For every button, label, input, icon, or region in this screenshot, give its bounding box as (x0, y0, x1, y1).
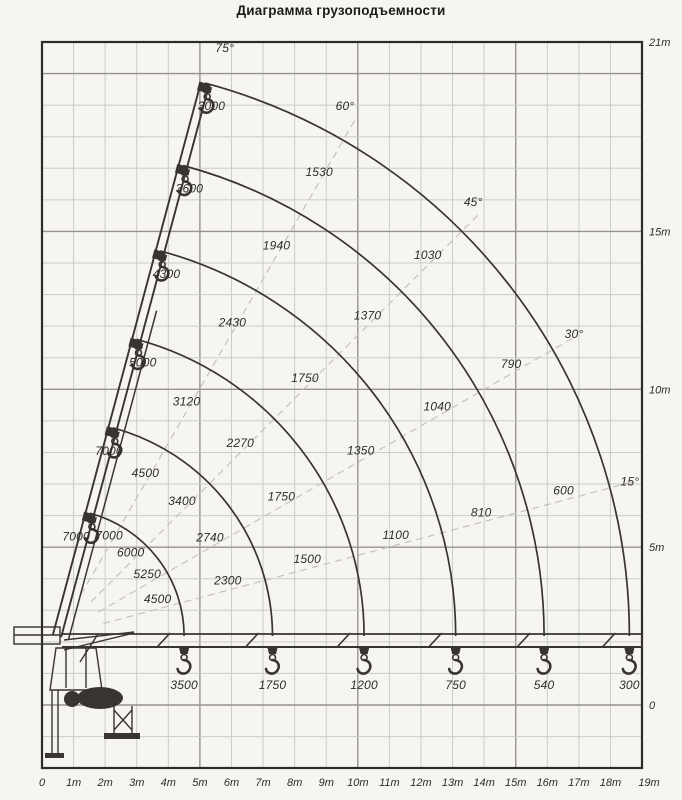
y-axis-tick-label: 15m (649, 226, 670, 238)
capacity-label-0: 750 (445, 678, 466, 692)
capacity-label-15: 1500 (294, 552, 322, 566)
hook-body (266, 660, 279, 674)
capacity-label-60: 1940 (263, 239, 291, 253)
x-axis-tick-label: 17m (568, 777, 589, 789)
hook-body (623, 660, 636, 674)
x-axis-tick-label: 12m (410, 777, 431, 789)
capacity-label-45: 3400 (168, 494, 196, 508)
capacity-label-30: 1750 (268, 489, 296, 503)
x-axis-tick-label: 6m (224, 777, 239, 789)
capacity-label-0: 540 (534, 678, 555, 692)
ground-hook-icon (266, 648, 279, 674)
hook-block (77, 687, 123, 709)
y-axis-tick-label: 5m (649, 542, 664, 554)
capacity-label-0: 3500 (170, 678, 198, 692)
capacity-label-0: 1750 (259, 678, 287, 692)
ground-hook-icon (449, 648, 462, 674)
hook-shackle (87, 517, 97, 523)
capacity-label-30: 1350 (347, 444, 375, 458)
hook-shackle (157, 255, 167, 261)
boom-stage-joint (602, 633, 615, 647)
capacity-label-0: 1200 (350, 678, 378, 692)
x-axis-tick-label: 15m (505, 777, 526, 789)
capacity-label-45: 1750 (291, 371, 319, 385)
hook-body (538, 660, 551, 674)
hook-shackle (133, 343, 143, 349)
angle-line-30 (99, 336, 577, 612)
hook-body (178, 660, 191, 674)
hook-body (449, 660, 462, 674)
outrigger-jack (114, 706, 132, 734)
angle-label-75: 75° (215, 41, 234, 55)
capacity-label-30: 790 (501, 357, 522, 371)
capacity-label-30: 1040 (424, 399, 452, 413)
angle-label-45: 45° (464, 195, 483, 209)
capacity-label-15: 600 (553, 483, 574, 497)
capacity-label-45: 2270 (225, 436, 254, 450)
crane-load-chart-canvas: 75°60°45°30°15°7000700060005250450035007… (0, 0, 682, 800)
outrigger-foot (104, 733, 140, 739)
capacity-label-30: 2740 (195, 531, 224, 545)
x-axis-tick-label: 8m (287, 777, 302, 789)
capacity-label-45: 1030 (414, 248, 442, 262)
boom-stage-joint (337, 633, 350, 647)
y-axis-tick-label: 21m (648, 37, 670, 49)
capacity-label-75: 3000 (198, 99, 226, 113)
capacity-label-75: 4300 (153, 267, 181, 281)
load-curve (205, 83, 629, 636)
capacity-label-0: 300 (619, 678, 640, 692)
y-axis-tick-label: 10m (649, 384, 670, 396)
capacity-label-15: 4500 (144, 592, 172, 606)
capacity-label-15: 810 (471, 505, 492, 519)
x-axis-tick-label: 9m (319, 777, 334, 789)
x-axis-tick-label: 10m (347, 777, 368, 789)
capacity-label-60: 1530 (305, 165, 333, 179)
angle-label-30: 30° (565, 327, 584, 341)
x-axis-tick-label: 13m (442, 777, 463, 789)
x-axis-tick-label: 4m (161, 777, 176, 789)
y-axis-tick-label: 0 (649, 700, 656, 712)
capacity-label-60: 4500 (132, 466, 160, 480)
hook-body (358, 660, 371, 674)
hook-shackle (624, 648, 634, 654)
boom-stage-joint (517, 633, 530, 647)
capacity-label-75: 7000 (95, 444, 123, 458)
capacity-label-75: 3600 (176, 182, 204, 196)
x-axis-tick-label: 11m (379, 777, 400, 789)
capacity-label-45: 1370 (354, 308, 382, 322)
x-axis-tick-label: 1m (66, 777, 81, 789)
front-jack-foot (45, 753, 64, 758)
hook-shackle (268, 648, 278, 654)
boom-stage-joint (246, 633, 259, 647)
angle-label-15: 15° (621, 474, 640, 488)
hook-shackle (539, 648, 549, 654)
crane-column (50, 648, 102, 690)
angle-label-60: 60° (336, 99, 355, 113)
x-axis-tick-label: 5m (192, 777, 207, 789)
x-axis-tick-label: 19m (638, 777, 659, 789)
hook-shackle (110, 432, 120, 438)
boom-stage-joint (429, 633, 442, 647)
hook-shackle (180, 169, 190, 175)
x-axis-tick-label: 7m (255, 777, 270, 789)
capacity-label-60: 3120 (173, 395, 201, 409)
x-axis-tick-label: 14m (473, 777, 494, 789)
angle-line-60 (81, 116, 357, 594)
capacity-label-60: 7000 (95, 529, 123, 543)
hook-block-sheave (64, 691, 80, 707)
x-axis-tick-label: 18m (600, 777, 621, 789)
capacity-label-15: 2300 (213, 573, 242, 587)
capacity-label-30: 5250 (134, 567, 162, 581)
load-curve (183, 166, 544, 637)
ground-hook-icon (623, 648, 636, 674)
hook-shackle (451, 648, 461, 654)
ground-hook-icon (178, 648, 191, 674)
x-axis-tick-label: 3m (129, 777, 144, 789)
hook-shackle (179, 648, 189, 654)
capacity-label-75: 7000 (62, 529, 90, 543)
front-jack (52, 690, 58, 754)
load-capacity-diagram: Диаграмма грузоподъемности 75°60°45°30°1… (0, 0, 682, 800)
ground-hook-icon (538, 648, 551, 674)
capacity-label-60: 2430 (218, 315, 247, 329)
x-axis-tick-label: 16m (537, 777, 558, 789)
capacity-label-45: 6000 (117, 545, 145, 559)
ground-hook-icon (358, 648, 371, 674)
x-axis-tick-label: 0 (39, 777, 46, 789)
x-axis-tick-label: 2m (97, 777, 113, 789)
capacity-label-15: 1100 (382, 528, 409, 542)
hook-shackle (359, 648, 369, 654)
hook-shackle (202, 87, 212, 93)
capacity-label-75: 5000 (129, 355, 157, 369)
